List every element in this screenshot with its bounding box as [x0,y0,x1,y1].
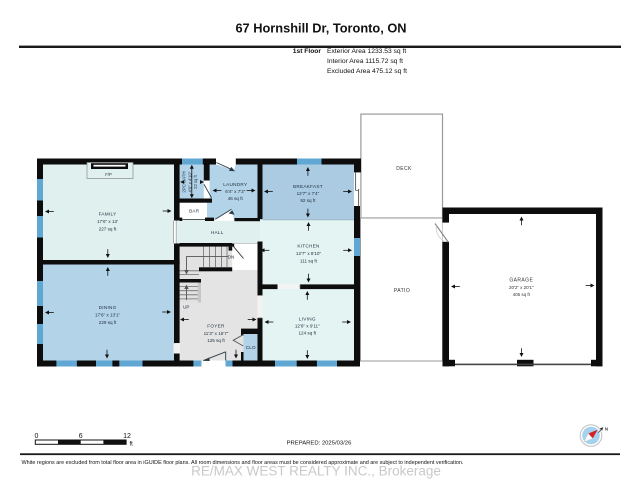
svg-text:17'6" x 13'1": 17'6" x 13'1" [95,313,121,318]
svg-text:405 sq ft: 405 sq ft [513,292,531,297]
svg-text:DECK: DECK [396,166,412,172]
svg-text:DINING: DINING [99,305,117,310]
svg-text:17'6" x 13': 17'6" x 13' [97,219,118,224]
svg-text:Exterior Area 1233.53 sq ft: Exterior Area 1233.53 sq ft [327,48,406,55]
svg-text:6'4" x 7'3": 6'4" x 7'3" [225,189,245,194]
svg-text:PATIO: PATIO [394,288,410,294]
svg-text:46 sq ft: 46 sq ft [228,196,244,201]
svg-text:BREAKFAST: BREAKFAST [293,184,323,189]
svg-text:DN: DN [228,254,235,259]
svg-text:6: 6 [79,433,83,440]
svg-text:Interior Area 1115.72 sq ft: Interior Area 1115.72 sq ft [327,58,403,65]
svg-text:UP: UP [183,305,189,310]
svg-text:12'7" x 8'10": 12'7" x 8'10" [296,251,322,256]
svg-text:67 Hornshill Dr, Toronto, ON: 67 Hornshill Dr, Toronto, ON [235,21,406,36]
svg-text:229 sq ft: 229 sq ft [99,320,117,325]
svg-text:F/P: F/P [105,172,112,177]
svg-text:KITCHEN: KITCHEN [297,244,319,249]
svg-text:12: 12 [123,433,131,440]
svg-text:ft: ft [130,442,134,448]
svg-text:22 sq ft: 22 sq ft [193,174,198,189]
svg-text:LIVING: LIVING [299,317,316,322]
svg-text:LAUNDRY: LAUNDRY [223,182,248,187]
svg-text:HALL: HALL [211,230,224,235]
svg-text:GARAGE: GARAGE [509,278,533,284]
svg-text:11'3" x 15'7": 11'3" x 15'7" [204,331,229,336]
svg-text:CLO: CLO [246,345,256,350]
svg-text:12'7" x 7'4": 12'7" x 7'4" [297,191,320,196]
svg-text:0: 0 [35,433,39,440]
svg-text:Excluded Area 475.12 sq ft: Excluded Area 475.12 sq ft [327,68,407,75]
svg-text:111 sq ft: 111 sq ft [300,259,318,264]
svg-text:124 sq ft: 124 sq ft [298,331,316,336]
svg-text:1st Floor: 1st Floor [293,48,322,55]
svg-text:92 sq ft: 92 sq ft [300,198,316,203]
svg-text:FOYER: FOYER [207,324,225,329]
svg-text:RE/MAX WEST REALTY INC., Broke: RE/MAX WEST REALTY INC., Brokerage [191,463,441,478]
svg-text:BAR: BAR [189,208,200,213]
svg-text:125 sq ft: 125 sq ft [207,338,225,343]
svg-text:20'2" x 20'1": 20'2" x 20'1" [509,285,534,290]
svg-text:12'6" x 9'11": 12'6" x 9'11" [295,324,320,329]
svg-text:PREPARED: 2025/03/26: PREPARED: 2025/03/26 [287,441,352,447]
svg-text:227 sq ft: 227 sq ft [99,227,117,232]
svg-text:FAMILY: FAMILY [99,212,117,217]
